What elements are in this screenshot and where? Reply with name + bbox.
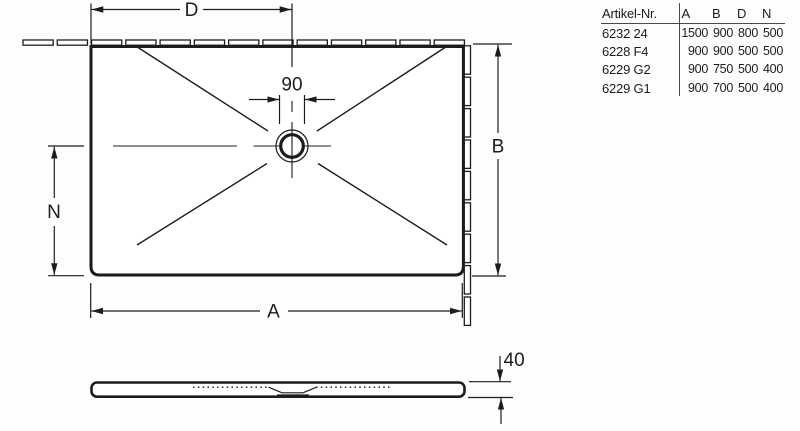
value-header: D	[734, 7, 759, 20]
tile-segment	[464, 297, 470, 325]
tile-segment	[400, 40, 430, 45]
value-cell: 900	[709, 27, 734, 40]
table-row: 6229 G2900750500400	[601, 61, 785, 79]
value-cell: 800	[734, 27, 759, 40]
table-row: 6232 241500900800500	[601, 24, 785, 42]
value-cell: 500	[734, 63, 759, 76]
value-cell: 900	[709, 45, 734, 58]
value-cell: 400	[759, 63, 784, 76]
tile-segment	[464, 77, 470, 105]
value-cell: 400	[759, 82, 784, 95]
tile-segment	[464, 234, 470, 262]
value-cell: 500	[734, 45, 759, 58]
spec-table: Artikel-Nr. ABDN 6232 241500900800500622…	[601, 3, 785, 97]
tile-segment	[331, 40, 361, 45]
artikel-cell: 6232 24	[601, 27, 679, 40]
table-row: 6229 G1900700500400	[601, 79, 785, 97]
value-cell: 900	[679, 82, 710, 95]
tile-segment	[464, 140, 470, 168]
dim-label-40: 40	[504, 350, 525, 371]
value-cell: 900	[679, 45, 710, 58]
plan-view: D 90 B N	[23, 0, 512, 325]
artikel-cell: 6229 G1	[601, 82, 679, 95]
spec-table-header-row: Artikel-Nr. ABDN	[601, 3, 785, 24]
value-cell: 500	[734, 82, 759, 95]
value-cell: 1500	[679, 27, 710, 40]
tile-segment	[57, 40, 87, 45]
tile-segment	[263, 40, 293, 45]
tile-segment	[126, 40, 156, 45]
tile-segment	[464, 46, 470, 74]
artikel-header: Artikel-Nr.	[601, 7, 679, 20]
value-header: B	[709, 7, 734, 20]
value-cell: 500	[759, 45, 784, 58]
tile-segment	[297, 40, 327, 45]
dim-label-90: 90	[281, 75, 302, 96]
tile-segment	[92, 40, 122, 45]
tile-segment	[434, 40, 464, 45]
tile-segment	[366, 40, 396, 45]
tile-segment	[464, 109, 470, 137]
dim-label-B: B	[492, 137, 505, 158]
tile-segment	[464, 266, 470, 294]
table-row: 6228 F4900900500500	[601, 42, 785, 60]
table-column-divider	[679, 3, 680, 96]
value-cell: 500	[759, 27, 784, 40]
tile-segment	[23, 40, 53, 45]
dim-B	[472, 44, 512, 276]
artikel-cell: 6228 F4	[601, 45, 679, 58]
tile-segment	[229, 40, 259, 45]
tile-segment	[464, 203, 470, 231]
dim-label-A: A	[267, 302, 280, 323]
dim-label-D: D	[185, 0, 199, 21]
dim-label-N: N	[47, 202, 61, 223]
artikel-cell: 6229 G2	[601, 63, 679, 76]
value-header: A	[679, 7, 710, 20]
tile-segment	[464, 171, 470, 199]
tile-segment	[194, 40, 224, 45]
tray-outline	[91, 47, 463, 276]
value-header: N	[759, 7, 784, 20]
value-cell: 900	[679, 63, 710, 76]
tile-segment	[160, 40, 190, 45]
tile-flange-strip-top	[23, 40, 464, 45]
side-view: 40	[92, 350, 525, 424]
tile-flange-strip-right	[464, 46, 470, 326]
shower-tray-dimension-drawing: D 90 B N	[0, 0, 800, 431]
value-cell: 750	[709, 63, 734, 76]
value-cell: 700	[709, 82, 734, 95]
